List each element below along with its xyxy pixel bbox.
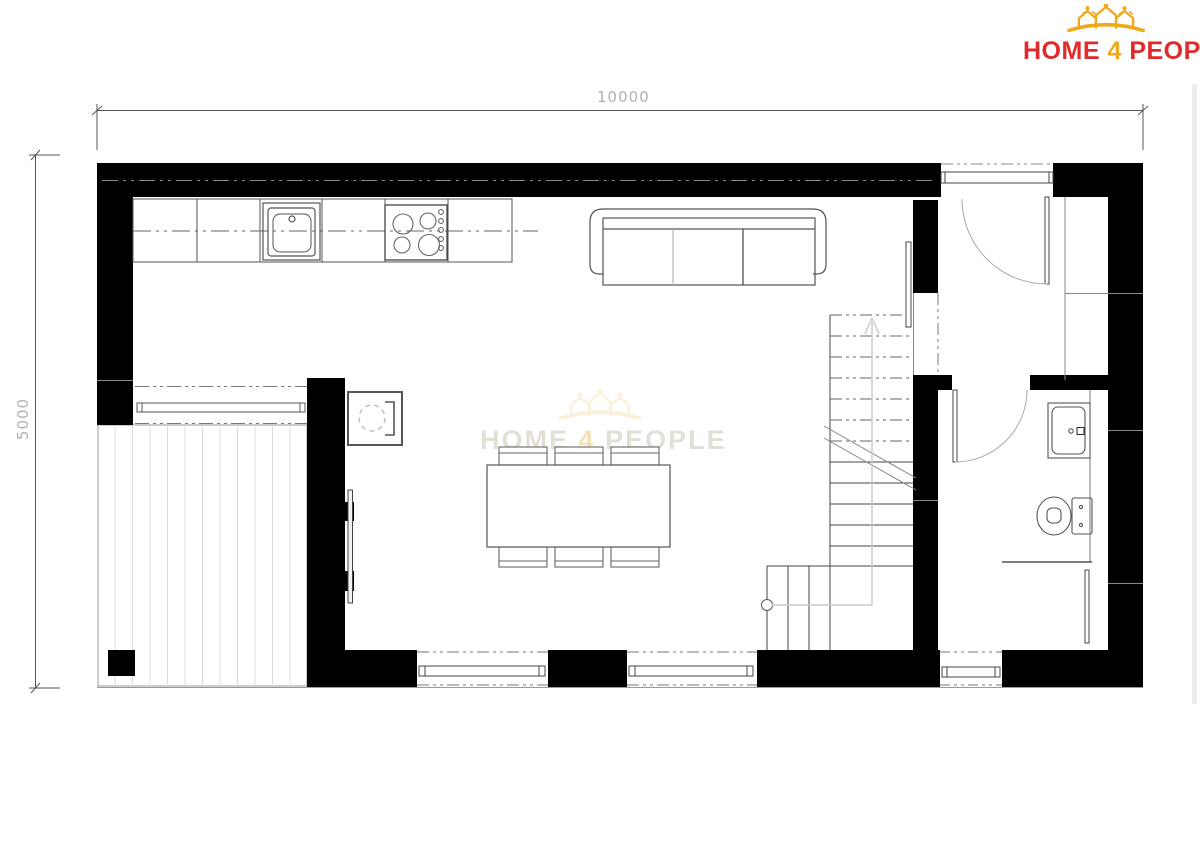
- window-bathroom: [940, 652, 1002, 685]
- sofa: [590, 209, 826, 285]
- shower: [1002, 562, 1092, 643]
- fireplace-stove: [348, 392, 402, 445]
- kitchen-counter: [133, 199, 538, 262]
- dining-chairs-bottom: [499, 547, 659, 567]
- dimension-line-top: [92, 104, 1148, 150]
- window-middle: [627, 652, 757, 685]
- dining-table: [487, 465, 670, 547]
- floor-plan-drawing: [0, 0, 1200, 844]
- terrace-sliding-door: [135, 387, 307, 424]
- dimension-line-left: [29, 150, 60, 693]
- entry-hall-lines: [1065, 197, 1108, 380]
- entrance-door: [941, 164, 1053, 284]
- floor-plan-page: HOME 4 PEOPLE 10000 5000 HOME 4 PEOPLE: [0, 0, 1200, 844]
- washbasin: [1048, 403, 1090, 458]
- toilet: [1037, 497, 1092, 535]
- wall-tv: [345, 490, 354, 603]
- shower-glass-screen: [1085, 570, 1089, 643]
- terrace-deck: [98, 425, 307, 686]
- window-left: [417, 652, 548, 685]
- bathroom-door: [953, 390, 1027, 462]
- dining-chairs-top: [499, 447, 659, 465]
- stairs: [762, 315, 917, 650]
- hall-door-leaf: [906, 242, 911, 327]
